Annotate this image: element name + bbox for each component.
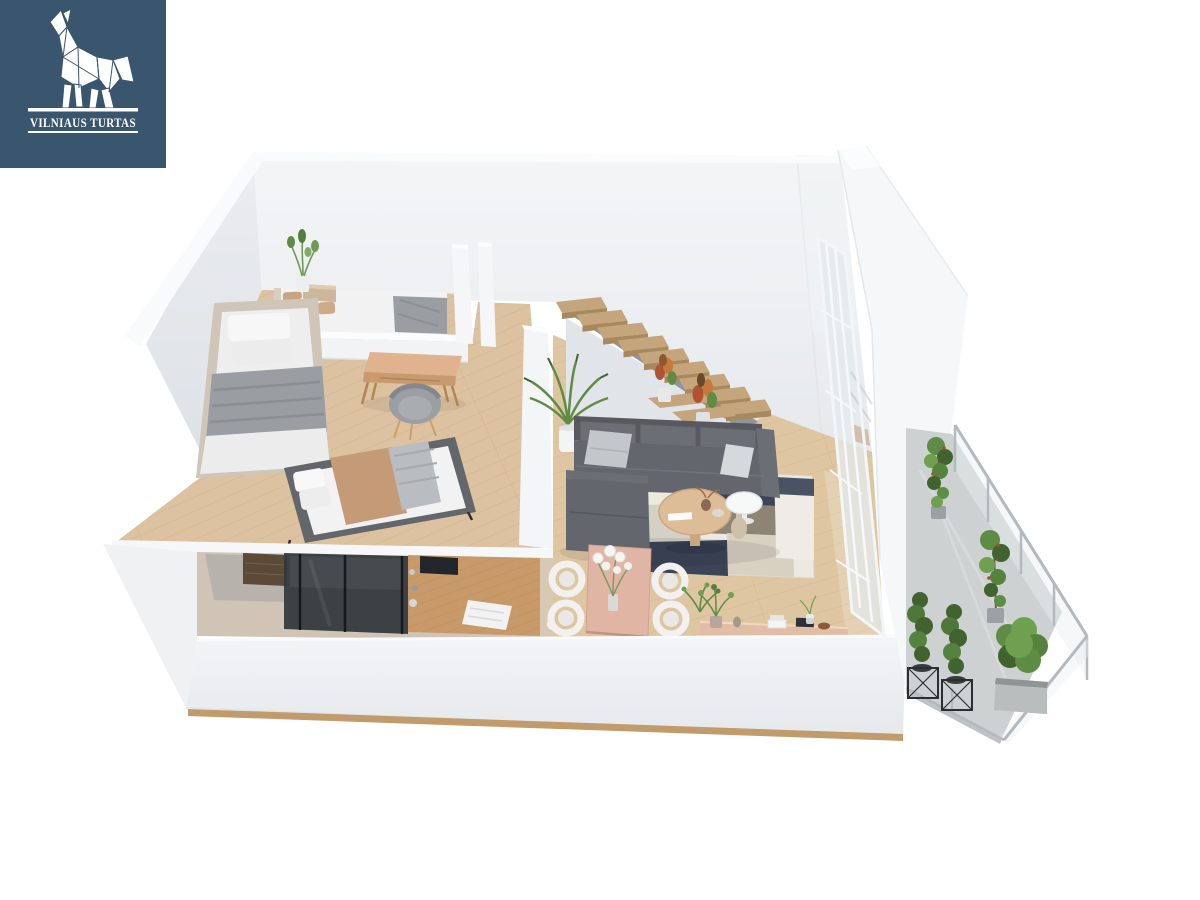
scene-svg: VILNIAUS TURTAS — [0, 0, 1200, 900]
daybed — [196, 298, 330, 478]
brand-text: VILNIAUS TURTAS — [30, 115, 136, 130]
dining-table — [586, 545, 651, 637]
sofa-pillow — [584, 430, 632, 468]
bathroom-wood-counter — [408, 555, 540, 636]
glass-shower — [284, 553, 408, 634]
kitchen-cabinet-dark — [243, 553, 287, 586]
floorplan-render: VILNIAUS TURTAS — [0, 0, 1200, 900]
logo-baseline — [28, 108, 138, 112]
corner-sofa — [560, 416, 780, 566]
sofa-pillow-2 — [720, 444, 754, 478]
logo: VILNIAUS TURTAS — [0, 0, 166, 168]
brand-underline — [28, 131, 138, 133]
